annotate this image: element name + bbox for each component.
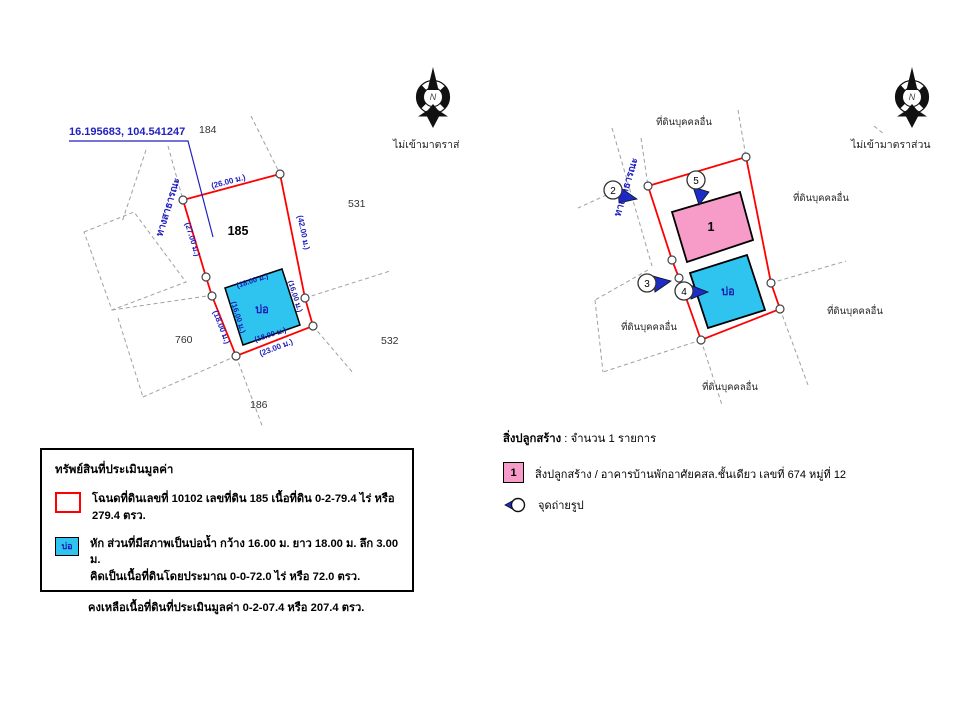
page: 16.195683, 104.541247 185 184 531 532 76…	[0, 0, 960, 720]
neighbor-plot-531: 531	[348, 198, 366, 210]
not-to-scale-right: ไม่เข้ามาตราส่วน	[850, 138, 931, 151]
north-compass-right: N	[896, 67, 929, 128]
deed-legend-text: โฉนดที่ดินเลขที่ 10102 เลขที่ดิน 185 เนื…	[92, 491, 399, 525]
pond-legend-line1: หัก ส่วนที่มีสภาพเป็นบ่อน้ำ กว้าง 16.00 …	[90, 536, 399, 570]
dim-right: (42.00 ม.)	[295, 214, 311, 250]
photo-point-label: จุดถ่ายรูป	[538, 496, 584, 514]
building-item-row: 1 สิ่งปลูกสร้าง / อาคารบ้านพักอาศัยคสล.ช…	[503, 462, 933, 483]
neighbor-land-top: ที่ดินบุคคลอื่น	[656, 115, 712, 128]
building-legend: สิ่งปลูกสร้าง : จำนวน 1 รายการ 1 สิ่งปลู…	[503, 429, 933, 514]
property-legend-box: ทรัพย์สินที่ประเมินมูลค่า โฉนดที่ดินเลขท…	[40, 448, 414, 592]
right-neighbor-parcel-lines	[578, 110, 884, 405]
plot-number: 185	[228, 224, 249, 238]
building-legend-header-value: : จำนวน 1 รายการ	[561, 433, 656, 445]
remaining-area-row: คงเหลือเนื้อที่ดินที่ประเมินมูลค่า 0-2-0…	[55, 600, 399, 617]
photo-point-icon	[503, 496, 527, 514]
photo-point-2: 2	[610, 186, 616, 197]
neighbor-plot-186: 186	[250, 399, 268, 411]
photo-point-4: 4	[681, 287, 687, 298]
neighbor-land-right-lower: ที่ดินบุคคลอื่น	[827, 304, 883, 317]
pond-legend-line2: คิดเป็นเนื้อที่ดินโดยประมาณ 0-0-72.0 ไร่…	[90, 569, 399, 586]
pond-label-right: บ่อ	[721, 286, 735, 298]
road-label: ทางสาธารณะ	[154, 177, 182, 238]
building-swatch: 1	[503, 462, 524, 483]
neighbor-land-left: ที่ดินบุคคลอื่น	[621, 320, 677, 333]
photo-point-3: 3	[644, 279, 650, 290]
neighbor-plot-184: 184	[199, 124, 217, 136]
building-legend-header: สิ่งปลูกสร้าง : จำนวน 1 รายการ	[503, 429, 933, 447]
building-legend-header-label: สิ่งปลูกสร้าง	[503, 433, 561, 445]
deed-legend-row: โฉนดที่ดินเลขที่ 10102 เลขที่ดิน 185 เนื…	[55, 491, 399, 525]
neighbor-plot-760: 760	[175, 334, 193, 346]
photo-point-5: 5	[693, 176, 699, 187]
right-diagram: 2 3 4 5 1 บ่อ ทางสาธารณะ ที่ดินบุคคลอื่น…	[578, 67, 931, 405]
north-compass-left: N	[417, 67, 450, 128]
not-to-scale-left: ไม่เข้ามาตราส่	[392, 138, 460, 151]
photo-point-row: จุดถ่ายรูป	[503, 496, 933, 514]
deed-boundary-swatch	[55, 492, 81, 513]
pond-legend-row: บ่อ หัก ส่วนที่มีสภาพเป็นบ่อน้ำ กว้าง 16…	[55, 536, 399, 586]
north-letter: N	[430, 92, 437, 102]
dim-left-upper: (27.00 ม.)	[183, 221, 202, 257]
property-legend-title: ทรัพย์สินที่ประเมินมูลค่า	[55, 461, 399, 479]
neighbor-land-bottom: ที่ดินบุคคลอื่น	[702, 380, 758, 393]
neighbor-land-right-upper: ที่ดินบุคคลอื่น	[793, 191, 849, 204]
survey-diagrams: 16.195683, 104.541247 185 184 531 532 76…	[0, 0, 960, 445]
building-number-label: 1	[708, 220, 715, 234]
left-neighbor-parcel-lines	[84, 116, 390, 428]
gps-coordinates: 16.195683, 104.541247	[69, 126, 185, 138]
left-diagram: 16.195683, 104.541247 185 184 531 532 76…	[69, 67, 460, 428]
pond-swatch: บ่อ	[55, 537, 79, 556]
neighbor-plot-532: 532	[381, 335, 399, 347]
pond-label: บ่อ	[255, 304, 269, 316]
remaining-area-text: คงเหลือเนื้อที่ดินที่ประเมินมูลค่า 0-2-0…	[88, 600, 364, 617]
north-letter: N	[909, 92, 916, 102]
building-item-text: สิ่งปลูกสร้าง / อาคารบ้านพักอาศัยคสล.ชั้…	[535, 462, 846, 483]
neighbor-land-labels: ที่ดินบุคคลอื่น ที่ดินบุคคลอื่น ที่ดินบุ…	[621, 115, 883, 393]
dim-left-lower: (18.00 ม.)	[211, 309, 232, 345]
